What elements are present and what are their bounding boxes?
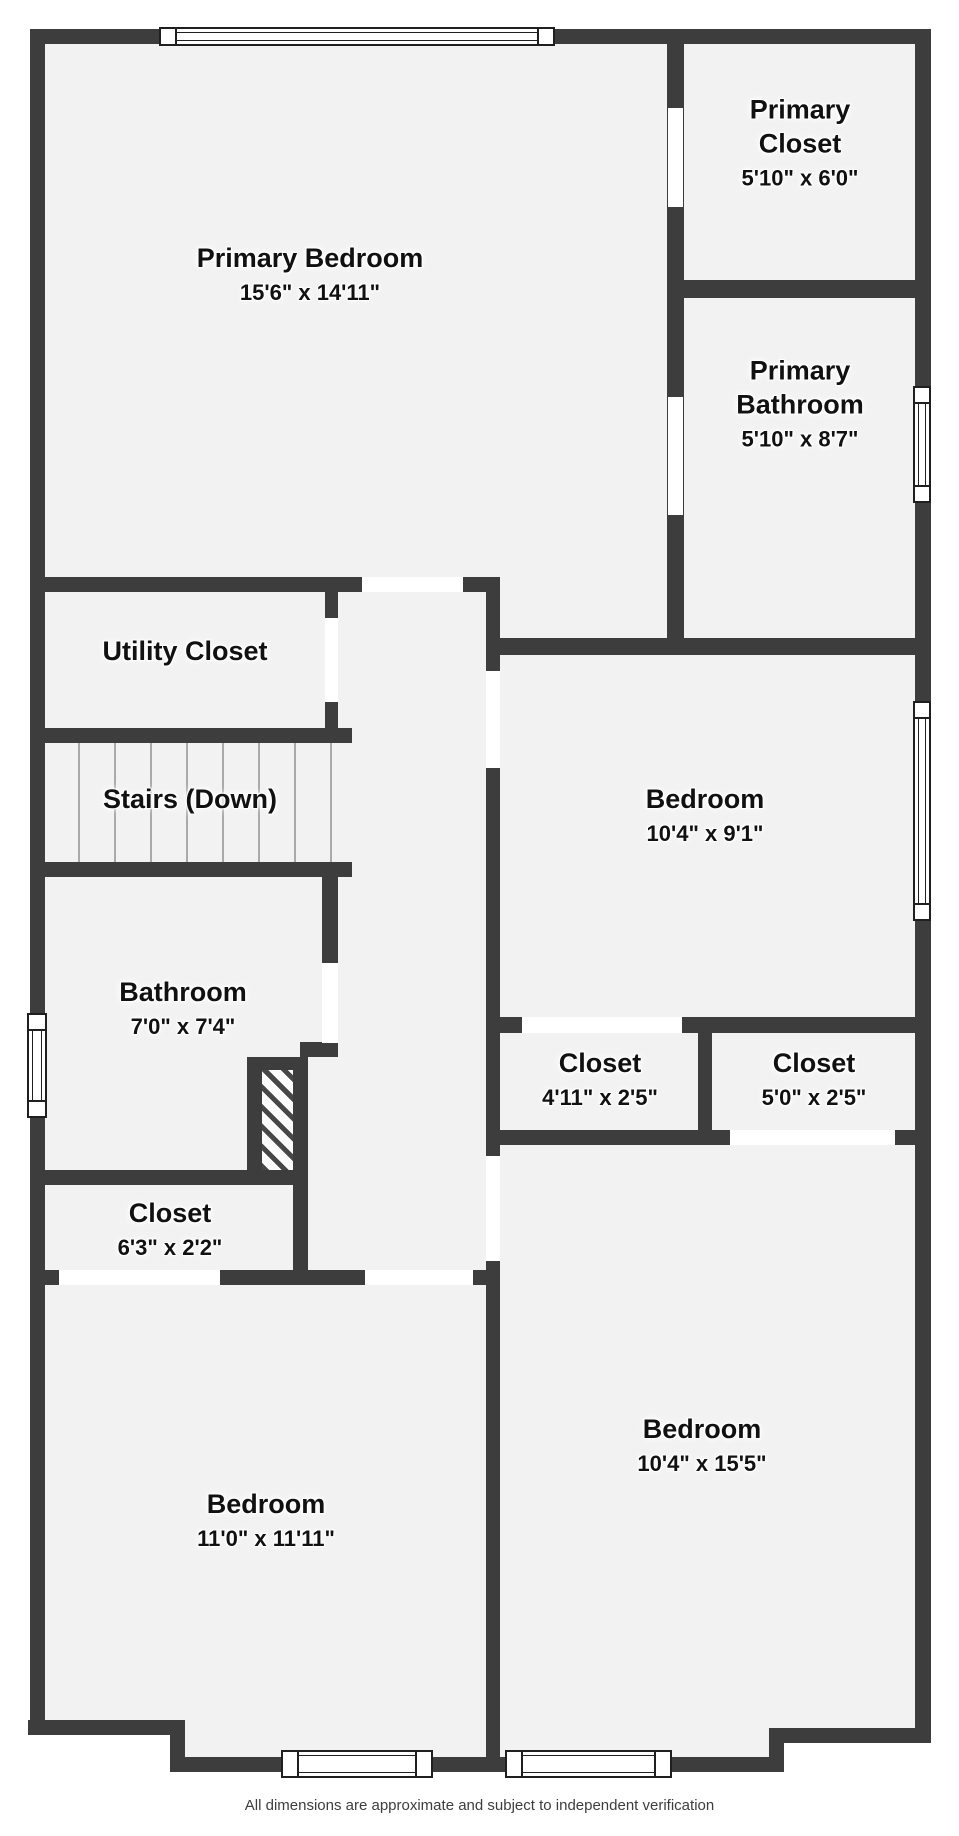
door-opening bbox=[322, 963, 338, 1043]
wall bbox=[300, 1042, 338, 1057]
window-frame bbox=[537, 29, 539, 44]
room-label-utility-closet: Utility Closet bbox=[102, 635, 267, 669]
wall bbox=[487, 638, 931, 655]
door-opening bbox=[486, 671, 500, 768]
wall bbox=[769, 1728, 784, 1772]
window-pane bbox=[299, 1755, 415, 1773]
window-pane bbox=[523, 1755, 654, 1773]
floor-plan: Primary Bedroom 15'6" x 14'11" Primary C… bbox=[0, 0, 959, 1836]
door-opening bbox=[668, 397, 683, 515]
window-frame bbox=[29, 1100, 45, 1102]
wall bbox=[170, 1757, 784, 1772]
room-label-bedroom-middle: Bedroom 10'4" x 9'1" bbox=[646, 783, 765, 847]
window-frame bbox=[415, 1752, 417, 1776]
room-label-primary-closet: Primary Closet 5'10" x 6'0" bbox=[718, 93, 883, 191]
window-pane bbox=[32, 1031, 42, 1100]
window bbox=[159, 27, 555, 46]
door-opening bbox=[486, 1156, 500, 1261]
room-label-closet-small-left: Closet 4'11" x 2'5" bbox=[542, 1047, 658, 1111]
window-frame bbox=[915, 903, 929, 905]
room-label-stairs: Stairs (Down) bbox=[103, 783, 277, 817]
window-pane bbox=[177, 32, 537, 41]
window bbox=[913, 701, 931, 921]
wall bbox=[30, 29, 45, 1735]
wall bbox=[698, 1017, 712, 1145]
window-frame bbox=[915, 485, 929, 487]
wall bbox=[28, 1720, 185, 1735]
window bbox=[913, 386, 931, 503]
wall bbox=[30, 1170, 308, 1185]
window bbox=[281, 1750, 433, 1778]
door-opening bbox=[522, 1017, 682, 1033]
room-label-bedroom-bottom-right: Bedroom 10'4" x 15'5" bbox=[637, 1413, 766, 1477]
room-label-primary-bedroom: Primary Bedroom 15'6" x 14'11" bbox=[197, 242, 424, 306]
door-opening bbox=[365, 1270, 473, 1285]
footer-disclaimer: All dimensions are approximate and subje… bbox=[0, 1797, 959, 1814]
wall bbox=[784, 1728, 931, 1743]
wall bbox=[667, 280, 931, 298]
wall bbox=[30, 728, 352, 743]
window-pane bbox=[918, 719, 926, 903]
window bbox=[27, 1013, 47, 1118]
room-label-closet-small-right: Closet 5'0" x 2'5" bbox=[762, 1047, 867, 1111]
room-label-primary-bathroom: Primary Bathroom 5'10" x 8'7" bbox=[705, 354, 895, 452]
door-opening bbox=[325, 618, 338, 702]
chimney-hatch bbox=[262, 1070, 293, 1170]
door-opening bbox=[59, 1270, 220, 1285]
door-opening bbox=[362, 577, 463, 592]
wall bbox=[247, 1057, 262, 1185]
room-label-bedroom-bottom-left: Bedroom 11'0" x 11'11" bbox=[197, 1488, 335, 1552]
room-label-bathroom: Bathroom 7'0" x 7'4" bbox=[119, 976, 247, 1040]
wall bbox=[30, 862, 352, 877]
door-opening bbox=[730, 1130, 895, 1145]
door-opening bbox=[668, 108, 683, 207]
window-pane bbox=[918, 404, 926, 485]
window-frame bbox=[654, 1752, 656, 1776]
room-label-closet-hall: Closet 6'3" x 2'2" bbox=[118, 1197, 223, 1261]
window bbox=[505, 1750, 672, 1778]
